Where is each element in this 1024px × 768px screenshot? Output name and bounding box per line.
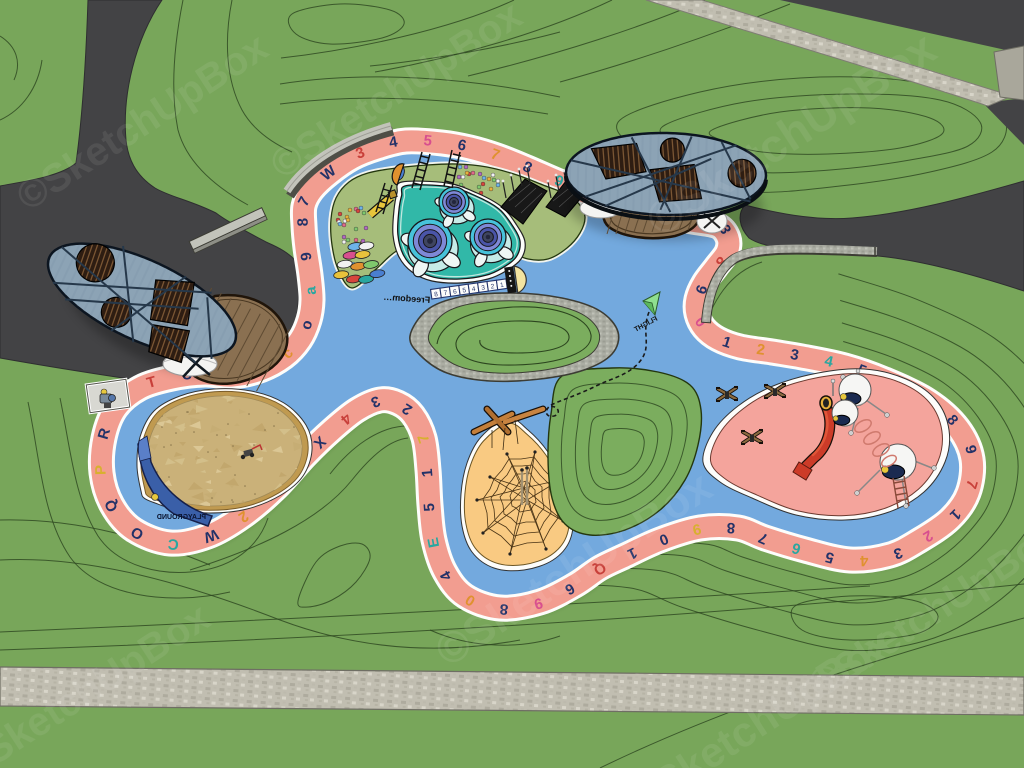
svg-text:PLAYGROUND: PLAYGROUND (157, 514, 206, 521)
